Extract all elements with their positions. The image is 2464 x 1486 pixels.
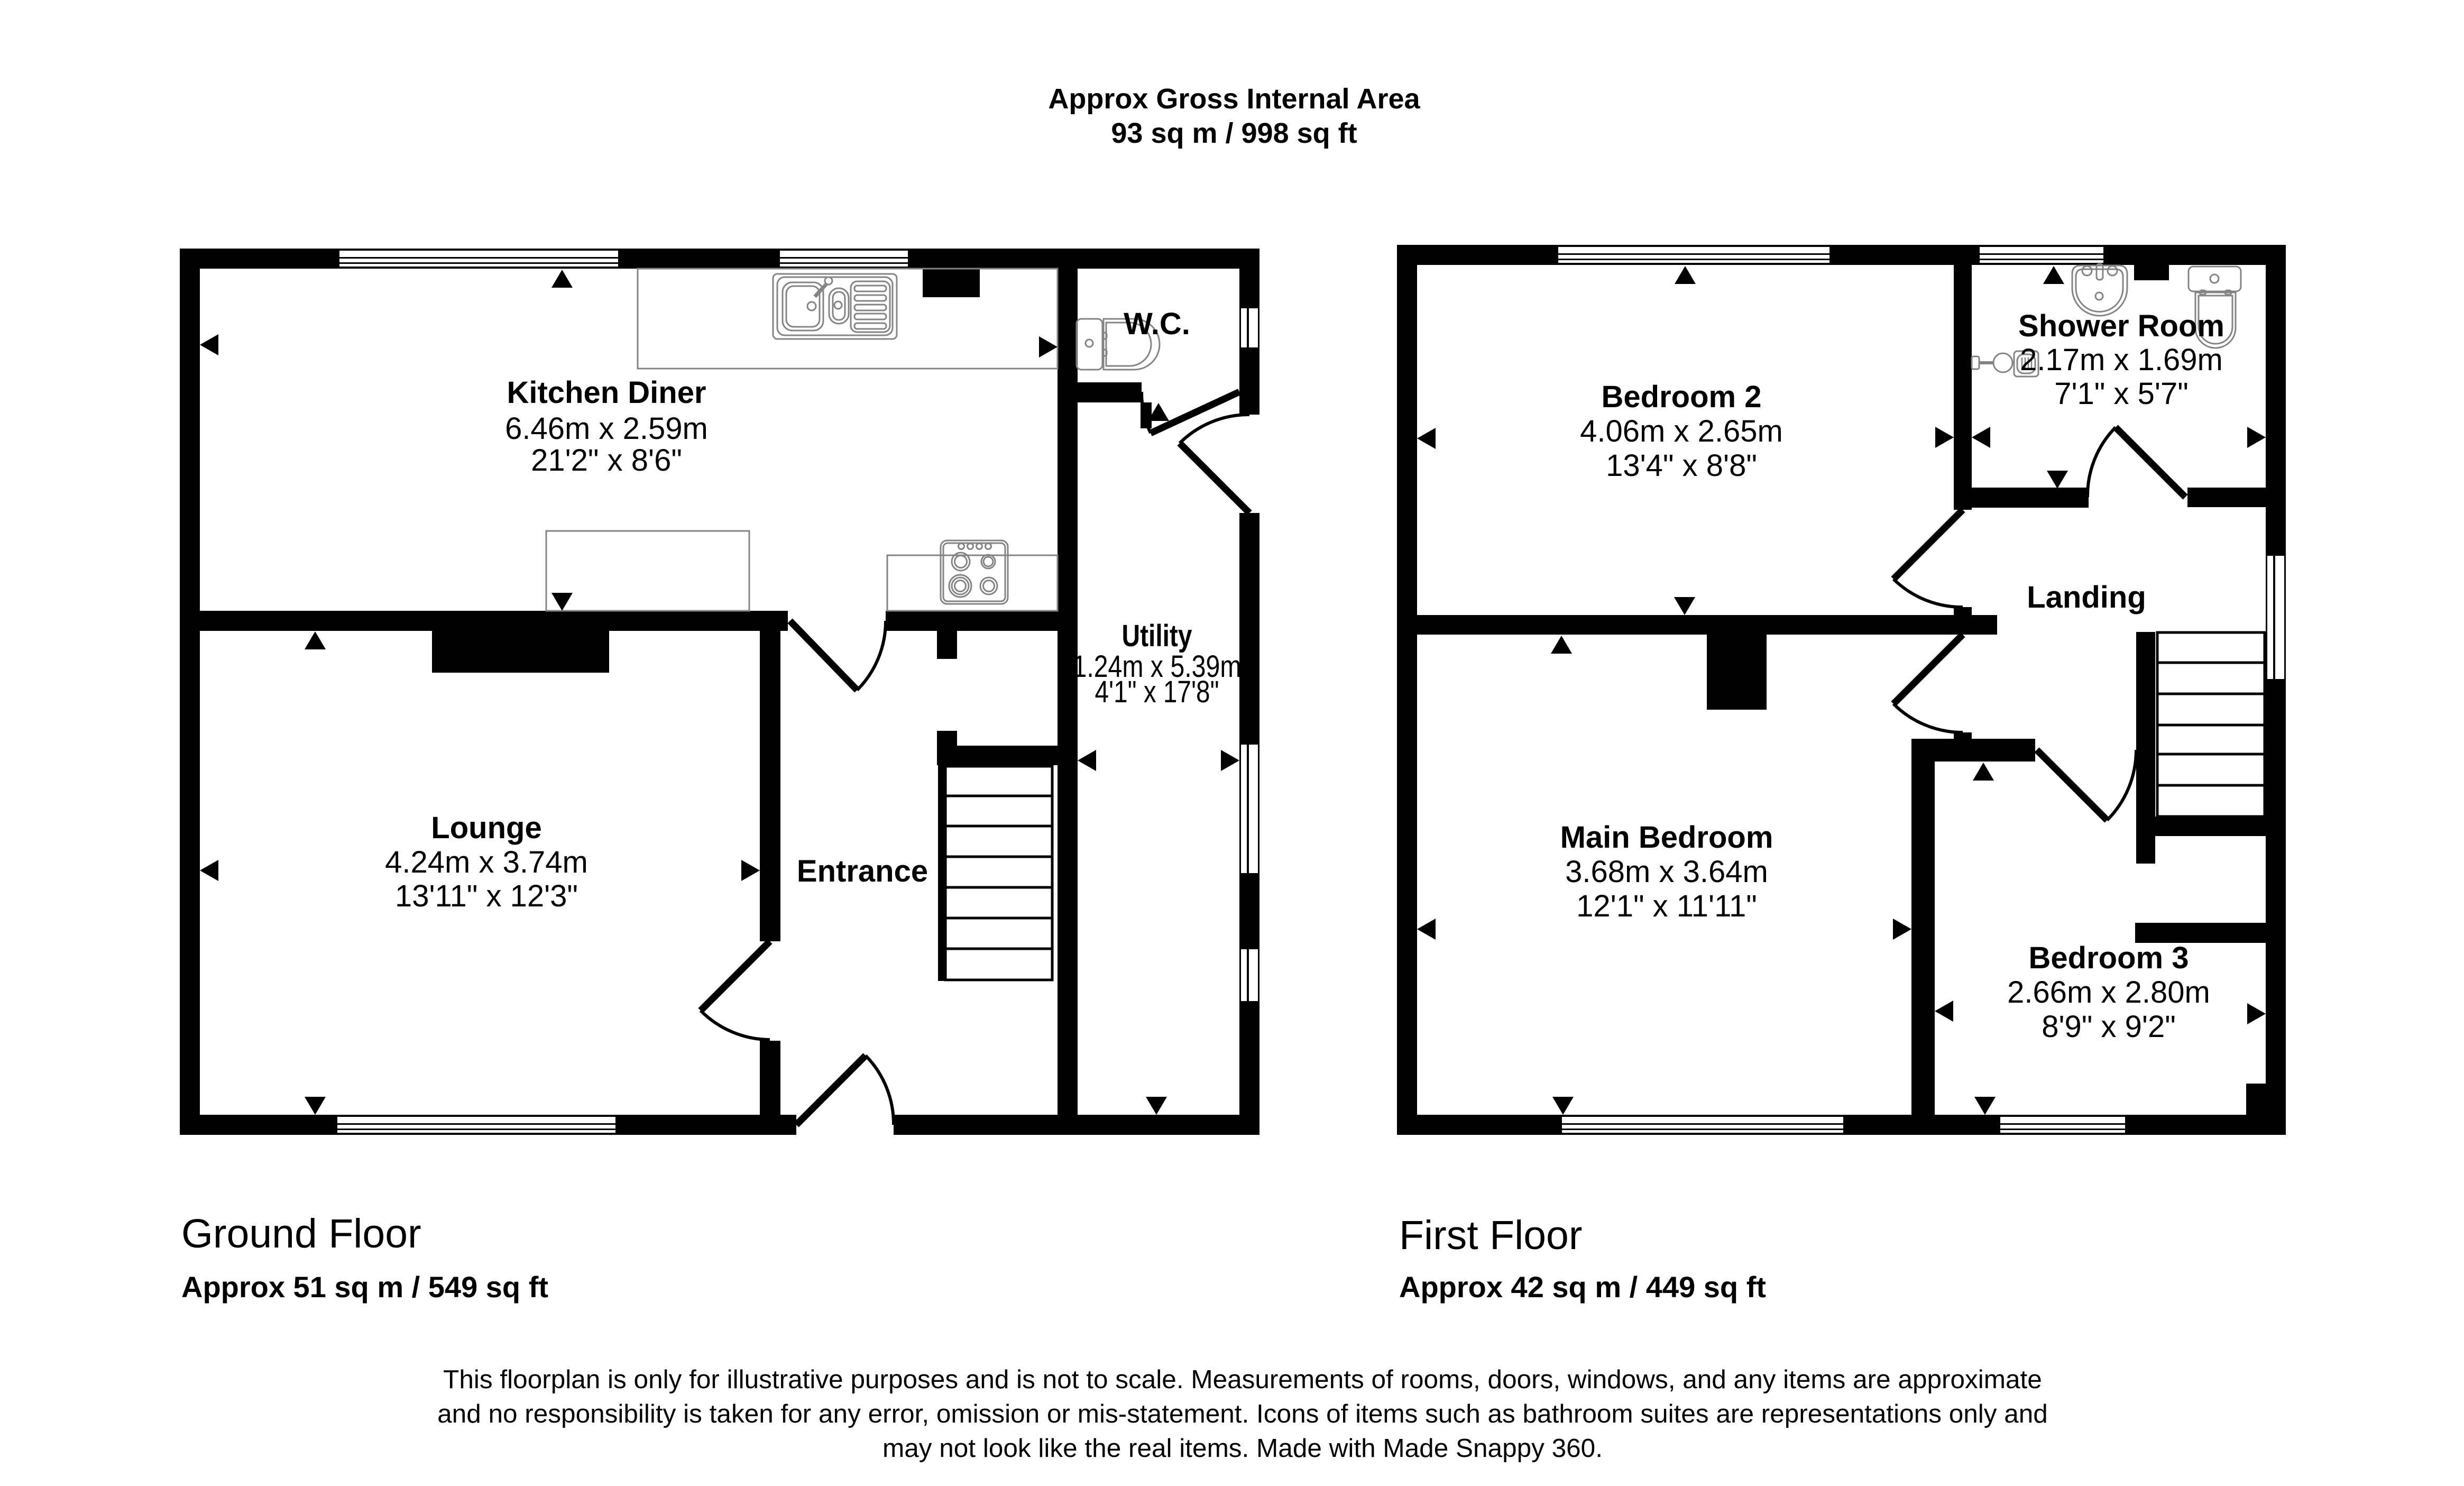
svg-text:First Floor: First Floor — [1399, 1213, 1583, 1258]
svg-text:Entrance: Entrance — [797, 854, 928, 888]
svg-text:6.46m x 2.59m: 6.46m x 2.59m — [505, 411, 708, 446]
svg-text:may not look like the real ite: may not look like the real items. Made w… — [882, 1434, 1603, 1463]
svg-text:Bedroom 3: Bedroom 3 — [2029, 941, 2189, 975]
svg-text:Approx Gross Internal Area: Approx Gross Internal Area — [1048, 83, 1420, 115]
svg-text:Utility: Utility — [1122, 619, 1192, 653]
svg-text:2.17m x 1.69m: 2.17m x 1.69m — [2020, 343, 2223, 377]
svg-text:4.24m x 3.74m: 4.24m x 3.74m — [385, 845, 588, 879]
svg-text:Approx 51 sq m / 549 sq ft: Approx 51 sq m / 549 sq ft — [181, 1270, 548, 1304]
svg-text:W.C.: W.C. — [1124, 307, 1190, 341]
svg-text:2.66m x 2.80m: 2.66m x 2.80m — [2007, 975, 2210, 1010]
svg-text:Bedroom 2: Bedroom 2 — [1602, 380, 1762, 414]
svg-text:This floorplan is only for ill: This floorplan is only for illustrative … — [443, 1365, 2042, 1394]
svg-text:3.68m x 3.64m: 3.68m x 3.64m — [1565, 855, 1768, 889]
svg-text:93 sq m / 998 sq ft: 93 sq m / 998 sq ft — [1111, 117, 1357, 149]
svg-text:Main Bedroom: Main Bedroom — [1560, 820, 1773, 855]
svg-text:Landing: Landing — [2027, 580, 2146, 614]
svg-text:4'1" x 17'8": 4'1" x 17'8" — [1095, 675, 1219, 709]
svg-text:Approx 42 sq m / 449 sq ft: Approx 42 sq m / 449 sq ft — [1399, 1270, 1766, 1304]
svg-text:21'2" x 8'6": 21'2" x 8'6" — [531, 443, 682, 478]
svg-text:Ground Floor: Ground Floor — [181, 1211, 421, 1256]
svg-text:Kitchen Diner: Kitchen Diner — [507, 375, 706, 410]
svg-text:8'9" x 9'2": 8'9" x 9'2" — [2042, 1010, 2176, 1044]
svg-text:Lounge: Lounge — [431, 811, 541, 845]
svg-text:12'1" x 11'11": 12'1" x 11'11" — [1576, 889, 1757, 923]
svg-text:4.06m x 2.65m: 4.06m x 2.65m — [1580, 414, 1783, 448]
svg-text:13'11" x 12'3": 13'11" x 12'3" — [395, 879, 578, 913]
svg-text:and no responsibility is taken: and no responsibility is taken for any e… — [437, 1399, 2048, 1428]
svg-text:Shower Room: Shower Room — [2018, 309, 2224, 343]
svg-text:7'1" x 5'7": 7'1" x 5'7" — [2054, 377, 2189, 411]
svg-text:13'4" x 8'8": 13'4" x 8'8" — [1606, 448, 1757, 483]
